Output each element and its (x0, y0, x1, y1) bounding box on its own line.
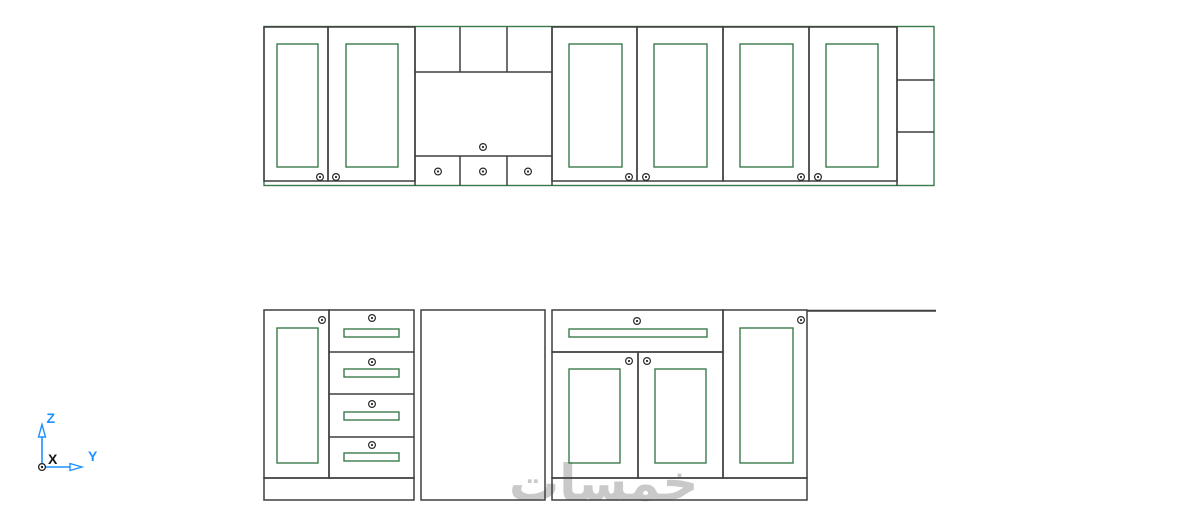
drawer-front-panel (344, 369, 399, 377)
drawer-front-panel (569, 329, 707, 337)
base-row-knobs (319, 315, 805, 449)
base-door-left (264, 310, 329, 478)
knob-dot (319, 176, 321, 178)
upper-door-4 (637, 27, 723, 181)
y-axis-arrowhead (70, 464, 82, 471)
wide-drawer (552, 310, 723, 352)
knob-dot (800, 319, 802, 321)
door-panel (654, 44, 707, 167)
base-tall-door (723, 310, 807, 478)
upper-door-3 (552, 27, 637, 181)
knob-dot (628, 360, 630, 362)
drawer-front-panel (344, 412, 399, 420)
upper-cabinet-row (264, 27, 934, 186)
drawer-front-panel (344, 329, 399, 337)
door-panel (277, 328, 318, 463)
base-door-a (552, 352, 638, 478)
upper-door-5 (723, 27, 809, 181)
knob-dot (371, 317, 373, 319)
z-axis-arrowhead (39, 425, 46, 438)
appliance-space (421, 310, 545, 500)
door-panel (569, 369, 620, 463)
plinth-left (264, 478, 414, 500)
door-panel (740, 328, 793, 463)
knob-dot (371, 361, 373, 363)
y-axis-label: Y (88, 448, 98, 464)
drawer-front-panel (344, 453, 399, 461)
cad-viewport: خمسات (0, 0, 1200, 510)
z-axis-label: Z (47, 410, 56, 426)
upper-door-6 (809, 27, 897, 181)
x-axis-label: X (48, 451, 58, 467)
knob-dot (321, 319, 323, 321)
upper-carcass-outline (264, 27, 934, 186)
knob-dot (646, 360, 648, 362)
origin-dot (41, 466, 43, 468)
knob-dot (800, 176, 802, 178)
door-panel (346, 44, 398, 167)
door-panel (826, 44, 878, 167)
knob-dot (636, 320, 638, 322)
plinth-right (552, 478, 807, 500)
knob-dot (335, 176, 337, 178)
knob-dot (437, 170, 439, 172)
knob-dot (817, 176, 819, 178)
knob-dot (371, 444, 373, 446)
knob-dot (482, 146, 484, 148)
door-panel (277, 44, 318, 167)
knob-dot (527, 170, 529, 172)
cad-drawing: Z Y X (0, 0, 1200, 510)
base-cabinet-row (264, 310, 936, 500)
base-door-b (638, 352, 723, 478)
knob-dot (628, 176, 630, 178)
upper-door-2 (328, 27, 415, 181)
door-panel (740, 44, 793, 167)
knob-dot (645, 176, 647, 178)
ucs-axis-icon: Z Y X (39, 410, 99, 471)
door-panel (655, 369, 706, 463)
knob-dot (371, 403, 373, 405)
knob-dot (482, 170, 484, 172)
door-panel (569, 44, 622, 167)
